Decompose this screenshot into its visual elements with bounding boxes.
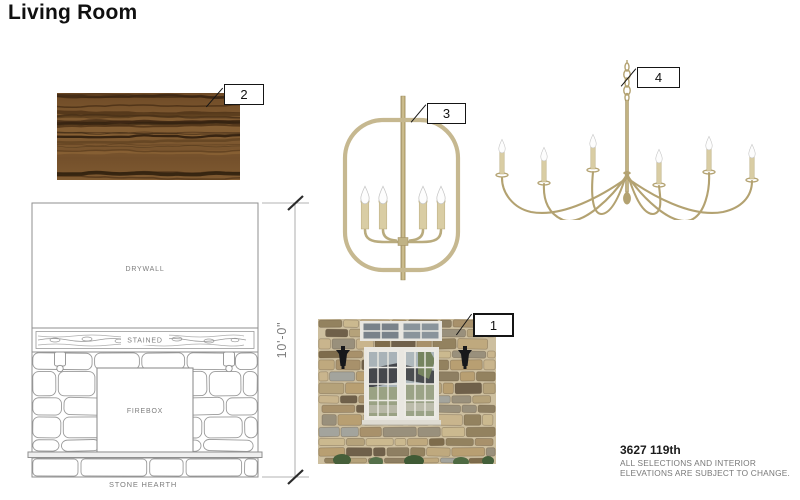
stone-exterior-photo: [318, 319, 496, 464]
callout-number-1: 1: [490, 318, 497, 333]
callout-number-3: 3: [443, 106, 450, 121]
selection-board-page: { "title": "Living Room", "callouts": { …: [0, 0, 800, 500]
stone-hearth-label: STONE HEARTH: [109, 480, 177, 489]
page-title: Living Room: [8, 1, 137, 25]
dimension-label: 10'-0": [275, 322, 289, 359]
main-window: [362, 347, 441, 425]
callout-number-4: 4: [655, 70, 662, 85]
callout-number-2: 2: [240, 87, 247, 102]
callout-box-3: 3: [427, 103, 466, 124]
chandelier-drawing: [483, 60, 788, 220]
project-name: 3627 119th: [620, 443, 790, 457]
dimension-tick-marks: [288, 196, 303, 484]
wood-sample-swatch: [57, 93, 240, 180]
pendant-stem: [401, 96, 405, 280]
stained-label: STAINED: [127, 338, 162, 345]
transom-window: [360, 321, 442, 341]
pendant-hub: [398, 238, 408, 246]
footer: 3627 119th ALL SELECTIONS AND INTERIOR E…: [620, 443, 790, 478]
chandelier-finial: [623, 191, 631, 205]
hearth-outline: [32, 458, 258, 477]
firebox-label: FIREBOX: [127, 408, 163, 415]
disclaimer-line-2: ELEVATIONS ARE SUBJECT TO CHANGE.: [620, 469, 790, 479]
fireplace-elevation-drawing: DRYWALL STAINED FIREBOX STONE HEARTH 10'…: [25, 195, 315, 500]
callout-box-2: 2: [224, 84, 264, 105]
drywall-label: DRYWALL: [125, 266, 164, 273]
hearth-shelf: [28, 452, 262, 458]
callout-box-4: 4: [637, 67, 680, 88]
hearth-stone-pattern: [33, 459, 258, 476]
callout-box-1: 1: [473, 313, 514, 337]
